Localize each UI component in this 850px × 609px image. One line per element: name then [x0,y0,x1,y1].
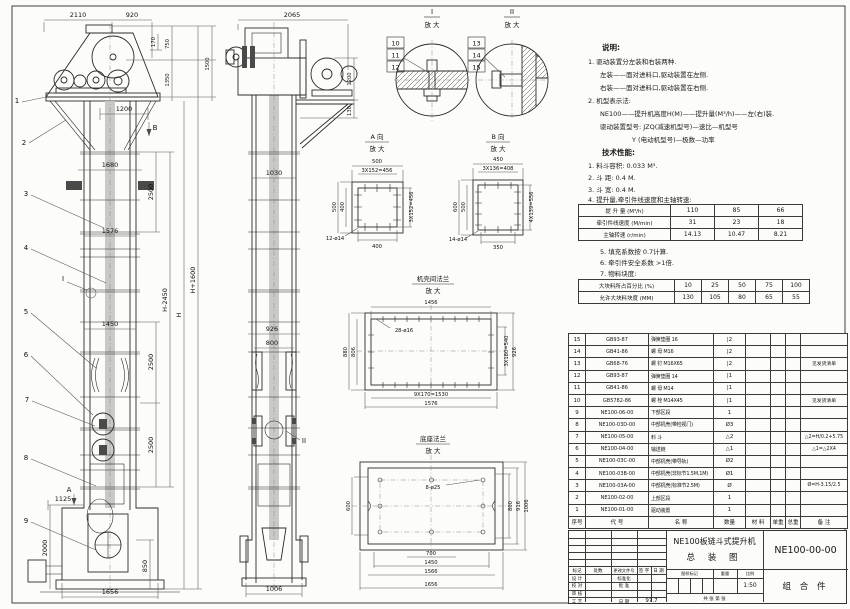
bom-code: NE100-06-00 [586,407,649,419]
lump-value: 10 [675,280,702,292]
performance-table: 提 升 量 (M³/h)1108566 牵引件线速度 (M/min)312318… [578,204,803,241]
bom-code: GB41-86 [586,382,649,394]
table-row: 主轴转速 (r/min)14.1310.478.21 [579,229,803,241]
bom-no: 10 [569,394,586,406]
bom-name: 螺 钉 M16X65 [649,358,714,370]
bom-qty: △1 [714,443,746,455]
bom-name: 下部区段 [649,407,714,419]
perf-value: 18 [759,217,803,229]
bom-no: 6 [569,443,586,455]
sign-label: 审 核 [569,591,585,597]
base-flange-view: 底座法兰 放 大 8-ø25 600 800 916 1006 700 1450… [346,434,530,590]
parts-list: 15GB93-87弹簧垫圈 16|2 14GB41-86螺 母 M16|2 13… [568,333,848,529]
bom-name: 上部区段 [649,492,714,504]
va-holes: 12-ø14 [326,236,345,242]
cf-holes: 28-ø16 [395,328,413,334]
lump-label: 允许大块料块度 (MM) [579,292,675,304]
stamp-header: 重量 [713,571,737,577]
bom-no: 12 [569,370,586,382]
note-line: NE100——提升机高度H(M)——提升量(M³/h)——左(右)装. [600,108,774,118]
dim-1030: 1030 [266,169,283,177]
bom-no: 15 [569,334,586,346]
detail-i-view: I 放 大 10 11 12 [387,8,470,122]
bom-qty: Ø [714,480,746,492]
bom-qty: |1 [714,370,746,382]
bom-header: 序号 [569,516,586,528]
bom-qty: |2 [714,334,746,346]
view-a-title: A 向 [370,132,383,141]
table-row: 8NE100-03D-00中部机壳(带检视门)Ø3 [569,419,848,431]
callout-2: 2 [22,139,26,147]
bom-code: NE100-01-00 [586,504,649,516]
bom-remark: Ø=H-3.15/2.5 [801,480,848,492]
casing-flange-title: 机壳间法兰 [417,274,450,283]
table-row: 15GB93-87弹簧垫圈 16|2 [569,334,848,346]
bom-code: GB5782-86 [586,394,649,406]
note-line: 右装——面对进料口,驱动装置在右侧. [600,82,708,92]
bom-header: 名 称 [649,516,714,528]
dim-1125: 1125 [55,495,72,503]
dim-h-minus: H-2450 [161,288,169,312]
base-flange-title: 底座法兰 [420,434,447,443]
sign-label: 批 准 [611,583,637,589]
notes-title: 说明: [602,42,620,53]
view-b-scale: 放 大 [490,144,506,153]
bom-code: NE100-04-00 [586,443,649,455]
bom-qty: |2 [714,346,746,358]
bom-code: GB93-87 [586,334,649,346]
drawing-subtitle: 总 装 图 [666,551,763,563]
dim-850: 850 [141,560,149,572]
va-dim-left-outer: 500 [332,202,338,212]
vb-dim-top: 450 [493,157,503,163]
bom-no: 3 [569,480,586,492]
dim-2500-1: 2500 [147,184,155,201]
cf-dim-top: 1456 [424,300,437,306]
bom-no: 5 [569,455,586,467]
dim-sv-130: 130 [347,106,353,116]
bom-name: 料 斗 [649,431,714,443]
note-line: 2. 机型表示法: [588,95,631,105]
base-flange-scale: 放 大 [425,446,441,455]
bom-code: NE100-03A-00 [586,480,649,492]
bom-code: GB41-86 [586,346,649,358]
bom-no: 13 [569,358,586,370]
bom-qty: |1 [714,382,746,394]
bom-name: 弹簧垫圈 14 [649,370,714,382]
sign-label: 工 艺 [569,599,585,605]
bom-name: 螺 母 M14 [649,382,714,394]
dim-926: 926 [266,325,278,333]
dim-2065: 2065 [284,11,301,19]
dim-1500: 1500 [205,57,211,70]
dim-1350: 1350 [165,73,171,86]
cf-dim-left-inner: 806 [351,347,357,357]
vb-dim-top2: 3X136=408 [482,166,513,172]
bom-remark [801,419,848,431]
rev-header: 更改文件号 [611,568,637,574]
lump-size-table: 大块料所占百分比 (%)10255075100 允许大块料块度 (MM)1301… [578,279,810,304]
bom-remark [801,370,848,382]
bom-remark [801,455,848,467]
bom-name: 螺 母 M16 [649,346,714,358]
tech-line: 5. 填充系数按 0.7计算. [600,246,668,256]
lump-value: 130 [675,292,702,304]
bom-header-row: 序号代 号名 称数量材 料单重总重备 注 [569,516,848,528]
callout-7: 7 [25,396,29,404]
perf-label: 主轴转速 (r/min) [579,229,671,241]
dim-1680: 1680 [102,161,119,169]
table-row: 10GB5782-86螺 栓 M14X45|1见发货清单 [569,394,848,406]
bom-no: 8 [569,419,586,431]
tech-line: 6. 牵引件安全系数 >1倍. [600,257,674,267]
dim-1006: 1006 [266,585,283,593]
bom-remark: △1=△2X4 [801,443,848,455]
callout-4: 4 [24,244,29,252]
bom-header: 代 号 [586,516,649,528]
view-a-scale: 放 大 [369,144,385,153]
perf-value: 8.21 [759,229,803,241]
bom-qty: Ø1 [714,468,746,480]
bom-name: 弹簧垫圈 16 [649,334,714,346]
perf-label: 牵引件线速度 (M/min) [579,217,671,229]
detail-ii-scale: 放 大 [504,20,520,29]
bom-remark: 见发货清单 [801,358,848,370]
va-dim-left-inner: 400 [340,202,346,212]
date-value: 97.7 [637,598,666,604]
detail-i-callout-10: 10 [391,40,399,48]
tech-line: 4. 提升量,牵引件线速度和主轴转速: [588,194,692,204]
bom-header: 材 料 [746,516,771,528]
bom-no: 7 [569,431,586,443]
dim-170: 170 [151,37,157,47]
bom-qty: Ø2 [714,455,746,467]
dim-1576: 1576 [102,227,119,235]
perf-value: 85 [715,205,759,217]
bom-name: 输送链 [649,443,714,455]
side-elevation-view [226,22,357,592]
dim-1450: 1450 [102,320,119,328]
perf-value: 10.47 [715,229,759,241]
bom-name: 螺 栓 M14X45 [649,394,714,406]
table-row: 12GB93-87弹簧垫圈 14|1 [569,370,848,382]
cf-dim-left-outer: 880 [343,347,349,357]
bom-code: NE100-02-00 [586,492,649,504]
bom-remark [801,468,848,480]
bf-dim-b4: 1656 [424,582,437,588]
stamp-header: 图样标记 [666,571,713,577]
table-row: 牵引件线速度 (M/min)312318 [579,217,803,229]
sign-label: 标准化 [611,576,637,582]
bom-no: 1 [569,504,586,516]
detail-ii-view: II 放 大 13 14 15 [468,8,550,120]
lump-value: 50 [729,280,756,292]
cf-dim-right-inner: 3X180=540 [504,335,510,366]
bom-qty: |1 [714,394,746,406]
dim-h: H [175,312,183,317]
dim-2500-2: 2500 [147,354,155,371]
callout-5: 5 [24,308,28,316]
bf-dim-b3: 1566 [424,569,437,575]
tech-line: 1. 料斗容积: 0.033 M³. [588,160,657,170]
table-row: 5NE100-03C-00中部机壳(带导轨)Ø2 [569,455,848,467]
rev-header: 签 字 [637,568,651,574]
sign-label: 校 对 [569,583,585,589]
callout-6: 6 [24,351,29,359]
drawing-sheet: 2110 920 170 750 1350 1500 1200 1680 157… [0,0,850,609]
callout-3: 3 [24,190,28,198]
detail-ii-callout-13: 13 [472,40,480,48]
table-row: 3NE100-03A-00中部机壳(标准节2.5M)ØØ=H-3.15/2.5 [569,480,848,492]
detail-i-title: I [431,8,433,16]
rev-header: 处数 [585,568,611,574]
front-elevation-view [28,24,180,592]
tech-line: 3. 斗 宽: 0.4 M. [588,184,636,194]
bom-no: 2 [569,492,586,504]
cf-dim-bottom-inner: 9X170=1530 [414,392,448,398]
bom-qty: 1 [714,407,746,419]
detail-ii-title: II [510,8,514,16]
vb-dim-left-inner: 500 [461,202,467,212]
vb-dim-bottom: 350 [493,245,503,251]
lump-value: 25 [702,280,729,292]
note-line: 1. 驱动装置分左装和右装两种. [588,56,676,66]
date-label: 日 期 [611,599,637,605]
bom-remark: 见发货清单 [801,394,848,406]
dim-750: 750 [165,39,171,49]
view-a-marker: A [67,486,72,494]
bf-dim-left: 600 [346,501,352,511]
bom-code: NE100-03D-00 [586,419,649,431]
vb-dim-left-outer: 600 [453,202,459,212]
bom-remark [801,334,848,346]
bom-no: 11 [569,382,586,394]
bom-header: 数量 [714,516,746,528]
note-line: Y (电动机型号)—极数—功率 [632,134,715,144]
bom-qty: |2 [714,358,746,370]
table-row: 1NE100-01-00驱动装置1 [569,504,848,516]
view-a: A 向 放 大 500 3X152=456 500 400 3X152=456 … [326,132,415,250]
detail-ii-callout-15: 15 [472,64,480,72]
dim-2000: 2000 [41,540,49,557]
cf-dim-bottom-outer: 1576 [424,401,437,407]
lump-value: 105 [702,292,729,304]
bom-code: NE100-03B-00 [586,468,649,480]
bom-qty: 1 [714,492,746,504]
perf-value: 23 [715,217,759,229]
title-block: 标记 处数 更改文件号 签 字 日 期 设 计 标准化 校 对 批 准 审 核 … [568,530,847,604]
callout-9: 9 [24,517,28,525]
lump-value: 100 [783,280,810,292]
dim-sv-1200: 1200 [347,72,353,85]
tech-title: 技术性能: [602,147,635,158]
bom-no: 14 [569,346,586,358]
bom-name: 驱动装置 [649,504,714,516]
table-row: 7NE100-05-00料 斗△2△2=H/0.2+5.75 [569,431,848,443]
table-row: 13GB68-76螺 钉 M16X65|2见发货清单 [569,358,848,370]
va-dim-top: 500 [372,159,382,165]
detail-i-marker: I [62,275,64,283]
table-row: 14GB41-86螺 母 M16|2 [569,346,848,358]
lump-value: 65 [756,292,783,304]
bom-qty: Ø3 [714,419,746,431]
bf-dim-r2: 916 [516,501,522,511]
table-row: 11GB41-86螺 母 M14|1 [569,382,848,394]
perf-label: 提 升 量 (M³/h) [579,205,671,217]
callout-8: 8 [24,454,28,462]
table-row: 提 升 量 (M³/h)1108566 [579,205,803,217]
va-dim-top2: 3X152=456 [361,168,392,174]
tech-line: 2. 斗 距: 0.4 M. [588,172,636,182]
bom-name: 中部机壳(非标节1.5M,1M) [649,468,714,480]
bom-code: NE100-05-00 [586,431,649,443]
bom-qty: △2 [714,431,746,443]
detail-i-scale: 放 大 [424,20,440,29]
item-type: 组 合 件 [763,580,848,592]
bom-remark [801,504,848,516]
casing-flange-view: 机壳间法兰 放 大 1456 28-ø16 880 806 3X180=540 … [343,274,518,409]
bom-name: 中部机壳(标准节2.5M) [649,480,714,492]
front-view-dimensions: 2110 920 170 750 1350 1500 1200 1680 157… [41,11,216,599]
bom-remark [801,382,848,394]
lump-value: 55 [783,292,810,304]
detail-ii-callout-14: 14 [472,52,480,60]
bom-code: GB93-87 [586,370,649,382]
rev-header: 日 期 [651,568,666,574]
note-line: 驱动装置型号: JZQ(减速机型号)—速比—机型号 [600,121,738,131]
dim-h-plus: H+1600 [189,267,197,294]
view-b-marker: B [153,124,158,132]
lump-value: 75 [756,280,783,292]
bom-qty: 1 [714,504,746,516]
bom-code: GB68-76 [586,358,649,370]
detail-i-callout-11: 11 [391,52,399,60]
table-row: 大块料所占百分比 (%)10255075100 [579,280,810,292]
bom-remark: △2=H/0.2+5.75 [801,431,848,443]
va-dim-bottom: 400 [372,244,382,250]
detail-ii-marker: II [302,437,306,445]
stamp-header: 比例 [737,571,763,577]
perf-value: 14.13 [671,229,715,241]
table-row: 允许大块料块度 (MM)130105806555 [579,292,810,304]
dim-920: 920 [126,11,138,19]
bf-holes: 8-ø25 [426,485,441,491]
va-dim-right: 3X152=456 [409,191,415,222]
callout-1: 1 [15,97,19,105]
bom-code: NE100-03C-00 [586,455,649,467]
casing-flange-scale: 放 大 [425,286,441,295]
cf-dim-right-outer: 926 [512,347,518,357]
bom-remark [801,346,848,358]
perf-value: 110 [671,205,715,217]
scale-value: 1:50 [737,582,763,589]
lump-value: 80 [729,292,756,304]
bf-dim-b2: 1450 [424,560,437,566]
table-row: 2NE100-02-00上部区段1 [569,492,848,504]
rev-header: 标记 [569,568,585,574]
sheet-count: 共 张 第 张 [666,596,763,602]
bom-no: 9 [569,407,586,419]
view-b-title: B 向 [491,132,504,141]
dim-800: 800 [266,339,278,347]
bom-remark [801,407,848,419]
sign-label: 设 计 [569,576,585,582]
view-b: B 向 放 大 450 3X136=408 600 500 4X139=556 … [449,132,535,251]
bom-no: 4 [569,468,586,480]
bom-name: 中部机壳(带导轨) [649,455,714,467]
bom-header: 总重 [786,516,801,528]
perf-value: 66 [759,205,803,217]
drawing-title: NE100板链斗式提升机 [666,536,763,547]
bom-header: 备 注 [801,516,848,528]
bom-name: 中部机壳(带检视门) [649,419,714,431]
table-row: 4NE100-03B-00中部机壳(非标节1.5M,1M)Ø1 [569,468,848,480]
tech-line: 7. 物料块度: [600,268,636,278]
drawing-number: NE100-00-00 [763,545,848,556]
table-row: 9NE100-06-00下部区段1 [569,407,848,419]
dim-1200: 1200 [116,105,133,113]
bf-dim-r3: 1006 [524,499,530,512]
vb-holes: 14-ø14 [449,237,468,243]
bf-dim-b1: 700 [426,551,436,557]
dim-2500-3: 2500 [147,437,155,454]
vb-dim-right: 4X139=556 [529,191,535,222]
note-line: 左装——面对进料口,驱动装置在左侧. [600,69,708,79]
lump-label: 大块料所占百分比 (%) [579,280,675,292]
bom-header: 单重 [771,516,786,528]
dim-1656: 1656 [102,588,119,596]
detail-i-callout-12: 12 [391,64,399,72]
perf-value: 31 [671,217,715,229]
table-row: 6NE100-04-00输送链△1△1=△2X4 [569,443,848,455]
bom-remark [801,492,848,504]
bf-dim-r1: 800 [508,501,514,511]
dim-2110: 2110 [70,11,87,19]
